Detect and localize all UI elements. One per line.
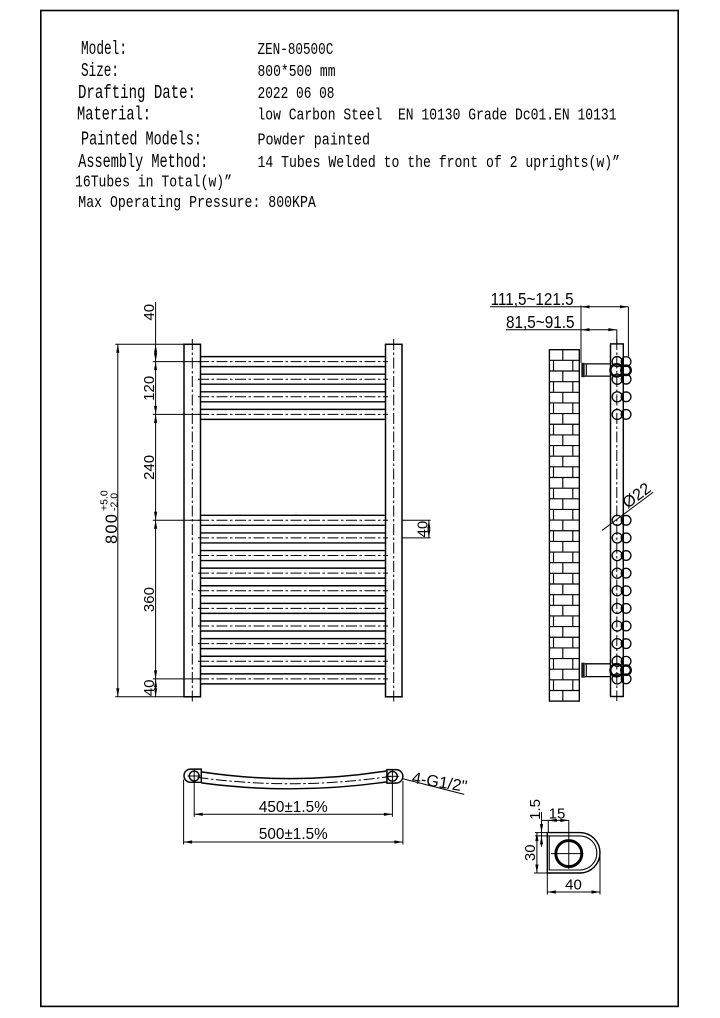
svg-text:40: 40 — [141, 680, 158, 697]
svg-text:Drafting Date:: Drafting Date: — [78, 82, 196, 104]
svg-text:40: 40 — [414, 521, 431, 538]
svg-text:40: 40 — [141, 304, 158, 321]
svg-text:111,5~121.5: 111,5~121.5 — [491, 289, 574, 309]
svg-text:ZEN-80500C: ZEN-80500C — [258, 40, 334, 59]
svg-text:2022 06 08: 2022 06 08 — [258, 84, 335, 103]
svg-text:81,5~91.5: 81,5~91.5 — [506, 312, 575, 332]
svg-text:Model:: Model: — [81, 38, 127, 60]
svg-text:14 Tubes Welded to the front o: 14 Tubes Welded to the front of 2 uprigh… — [258, 153, 621, 172]
svg-text:16Tubes in Total(w)”: 16Tubes in Total(w)” — [75, 174, 232, 193]
svg-text:4-G1/2": 4-G1/2" — [411, 769, 469, 796]
svg-text:240: 240 — [141, 455, 158, 480]
svg-text:450±1.5%: 450±1.5% — [259, 799, 328, 816]
svg-text:Painted Models:: Painted Models: — [81, 129, 202, 151]
svg-text:1.5: 1.5 — [527, 799, 544, 820]
svg-text:Assembly Method:: Assembly Method: — [78, 151, 208, 173]
svg-text:low Carbon Steel EN 10130 Gra: low Carbon Steel EN 10130 Grade Dc01.EN … — [258, 106, 617, 125]
svg-text:800*500 mm: 800*500 mm — [258, 62, 336, 81]
svg-text:15: 15 — [549, 805, 566, 822]
svg-text:Ø22: Ø22 — [619, 479, 654, 512]
svg-text:Max Operating Pressure: 800KPA: Max Operating Pressure: 800KPA — [78, 194, 316, 213]
svg-text:500±1.5%: 500±1.5% — [259, 826, 328, 843]
svg-text:Material:: Material: — [77, 104, 151, 126]
svg-text:30: 30 — [522, 844, 539, 861]
svg-text:Size:: Size: — [81, 60, 119, 82]
svg-text:Powder painted: Powder painted — [258, 131, 371, 150]
svg-text:-2.0: -2.0 — [108, 493, 120, 511]
svg-text:800: 800 — [103, 513, 121, 544]
svg-text:40: 40 — [565, 877, 582, 894]
svg-text:120: 120 — [141, 376, 158, 401]
svg-text:360: 360 — [141, 587, 158, 612]
